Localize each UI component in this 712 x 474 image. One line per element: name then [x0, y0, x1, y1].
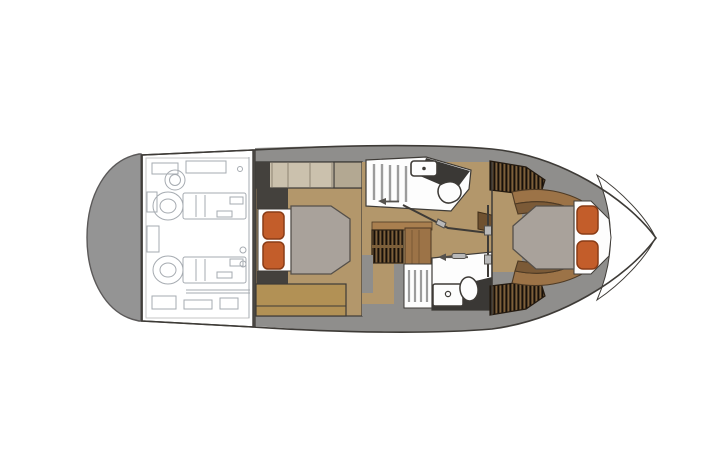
door-latch-lower: [485, 255, 492, 264]
floorplan-canvas: [0, 0, 712, 474]
yacht-floorplan: [0, 0, 712, 474]
aft-cabinet-corner: [256, 162, 270, 188]
head-lower-ledge: [394, 264, 404, 308]
midship-section: [362, 157, 500, 316]
head-upper-toilet: [438, 182, 461, 203]
aft-pillow-bottom: [263, 242, 284, 269]
vberth-pillow-top: [577, 206, 598, 234]
engine-room: [142, 150, 255, 327]
nightstand-top: [257, 188, 288, 209]
door-latch-upper: [485, 226, 492, 235]
aft-pillow-top: [263, 212, 284, 239]
aft-cabinet-end: [334, 162, 362, 188]
door-handle-lower: [452, 254, 466, 259]
aft-cabin: [256, 162, 362, 316]
aft-settee: [256, 284, 346, 316]
stairs-landing: [362, 255, 373, 293]
stairs-side-panel: [405, 228, 431, 266]
vberth-pillow-bottom: [577, 241, 598, 269]
swim-platform: [87, 154, 141, 321]
head-lower-sink: [433, 284, 463, 306]
aft-bed-mattress: [291, 206, 350, 274]
head-upper: [366, 157, 471, 211]
